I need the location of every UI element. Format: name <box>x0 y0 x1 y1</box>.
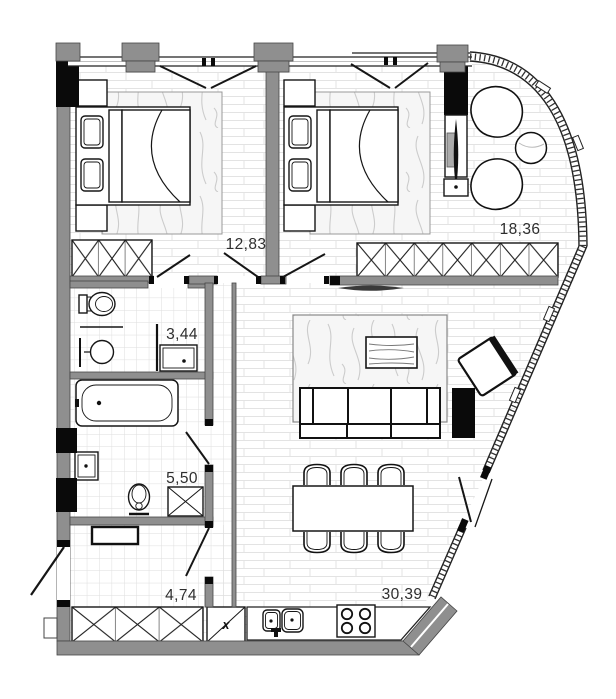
sofa-icon <box>300 388 440 438</box>
entry-door-icon <box>31 540 70 607</box>
bathroom-2-south-wall <box>70 517 213 525</box>
bench-icon <box>92 527 138 544</box>
corridor-partition-wall <box>232 283 236 607</box>
kitchen: x <box>72 605 430 642</box>
window-jamb <box>393 57 397 65</box>
cooktop-icon <box>337 605 375 637</box>
wall-cap-black <box>330 276 340 285</box>
bedroom-1-area-label: 12,83 <box>226 236 267 253</box>
shaft-black-mid <box>56 428 77 453</box>
window-jamb <box>202 58 206 66</box>
bathroom-east-wall-b <box>205 465 213 527</box>
dining-chair-icon <box>341 465 367 486</box>
tv-unit-icon <box>444 62 468 189</box>
pier-foot <box>440 62 465 72</box>
washer-icon <box>168 487 203 516</box>
lounge-chair-icon <box>471 87 522 137</box>
window-jamb <box>384 57 388 65</box>
entry-closet-icon <box>72 607 203 642</box>
pier <box>56 43 80 61</box>
dining-chair-icon <box>304 465 330 486</box>
toilet-icon <box>79 293 115 316</box>
pier-foot <box>126 61 155 72</box>
shaft-black-low <box>56 478 77 512</box>
entry-pier <box>44 618 57 638</box>
bathtub-icon <box>75 380 178 426</box>
shaft-black-top <box>56 61 79 107</box>
hallway <box>92 527 138 544</box>
living-area-label: 30,39 <box>382 586 423 603</box>
bathroom-1-area-label: 3,44 <box>166 326 198 343</box>
dining-table-icon <box>293 486 413 531</box>
side-table-dot <box>454 185 458 189</box>
media-block-icon <box>452 388 475 438</box>
coffee-table-icon <box>366 337 417 368</box>
bathroom-2-area-label: 5,50 <box>166 470 198 487</box>
washbasin-icon <box>160 345 197 371</box>
cabinet-sink-icon <box>75 452 98 480</box>
pier-foot <box>258 61 289 72</box>
dining-chair-icon <box>341 532 367 553</box>
pier <box>437 45 468 62</box>
pier <box>122 43 159 61</box>
bathroom-1-north-wall <box>70 281 148 288</box>
bedroom-2-area-label: 18,36 <box>500 221 541 238</box>
bottom-wall <box>57 641 419 655</box>
dining-area <box>293 465 413 553</box>
window-jamb <box>211 58 215 66</box>
bedroom-divider-wall <box>266 62 279 277</box>
dining-chair-icon <box>378 532 404 553</box>
dining-chair-icon <box>304 532 330 553</box>
floor-plan-svg: x <box>0 0 616 699</box>
lounge-chair-icon <box>471 159 522 209</box>
closet-icon <box>72 240 152 277</box>
floor-plan-page: x <box>0 0 616 699</box>
bath-divider-wall <box>70 372 213 379</box>
round-table-icon <box>516 133 547 164</box>
appliance-x-mark: x <box>222 618 231 632</box>
wardrobe-icon <box>357 243 558 277</box>
fridge-icon: x <box>207 607 245 642</box>
bathroom-east-wall-a <box>205 283 213 425</box>
dining-chair-icon <box>378 465 404 486</box>
bedroom-2-south-wall <box>330 276 558 285</box>
hallway-area-label: 4,74 <box>165 587 197 604</box>
pier <box>254 43 293 61</box>
